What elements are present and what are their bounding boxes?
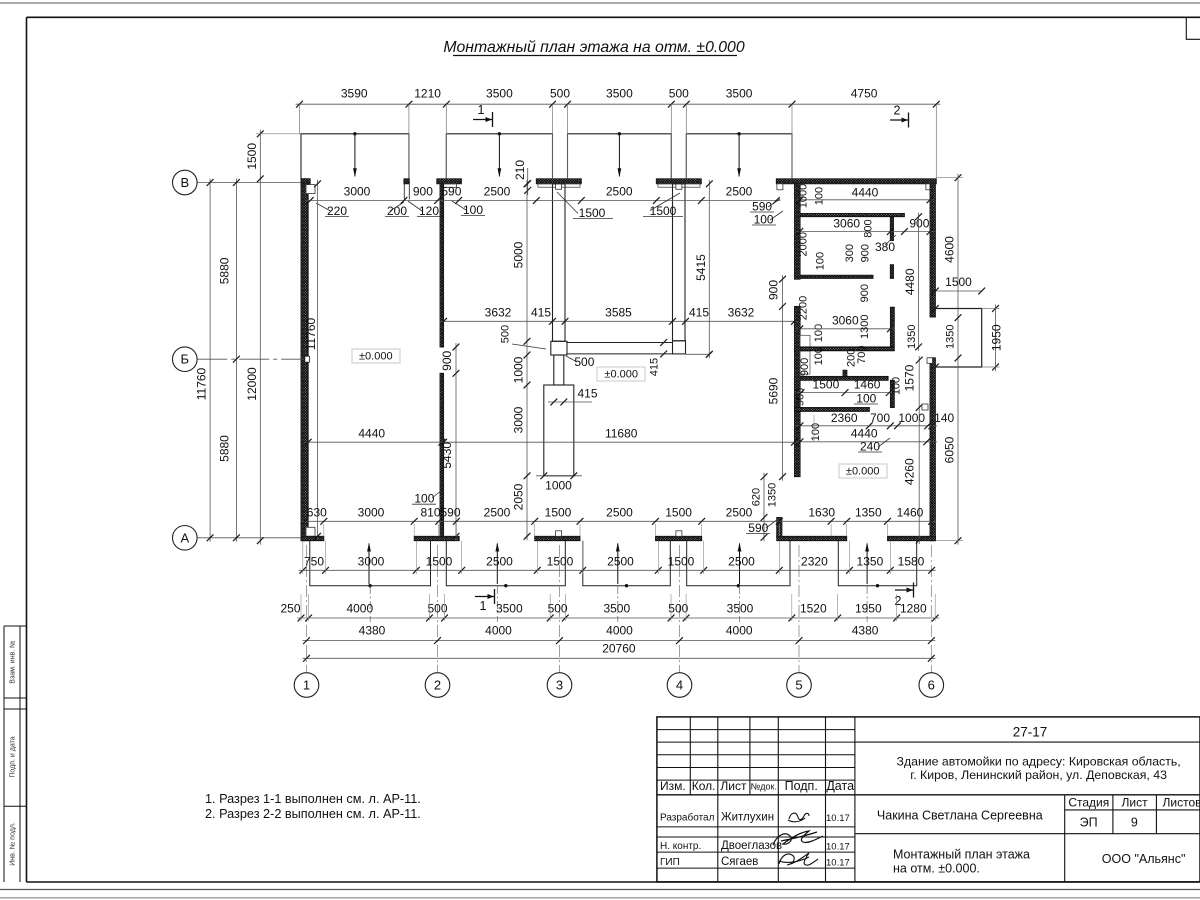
svg-text:100: 100: [813, 324, 825, 342]
svg-text:12000: 12000: [245, 367, 259, 401]
svg-text:3000: 3000: [512, 406, 526, 433]
svg-text:6: 6: [928, 678, 935, 693]
svg-text:140: 140: [934, 411, 954, 425]
svg-text:1500: 1500: [426, 554, 453, 568]
svg-text:1: 1: [478, 103, 485, 117]
svg-text:1950: 1950: [990, 324, 1004, 351]
svg-text:4380: 4380: [359, 624, 386, 638]
svg-text:1000: 1000: [545, 479, 572, 493]
svg-text:3060: 3060: [832, 314, 859, 328]
svg-text:590: 590: [748, 521, 768, 535]
svg-text:1500: 1500: [579, 206, 606, 220]
svg-text:5000: 5000: [512, 241, 526, 268]
svg-text:В: В: [180, 175, 189, 190]
svg-text:700: 700: [856, 346, 868, 364]
svg-text:210: 210: [513, 160, 527, 180]
svg-text:2500: 2500: [486, 554, 513, 568]
svg-text:3632: 3632: [728, 306, 755, 320]
svg-text:100: 100: [810, 423, 822, 441]
svg-text:5880: 5880: [218, 435, 232, 462]
svg-text:1350: 1350: [857, 554, 884, 568]
svg-text:2. Разрез 2-2 выполнен см. л.: 2. Разрез 2-2 выполнен см. л. АР-11.: [205, 807, 421, 821]
svg-text:1: 1: [480, 599, 487, 613]
svg-text:3500: 3500: [727, 602, 754, 616]
svg-text:1000: 1000: [512, 356, 526, 383]
svg-text:3060: 3060: [833, 217, 860, 231]
svg-text:1520: 1520: [800, 602, 827, 616]
svg-text:4: 4: [676, 678, 683, 693]
svg-text:3000: 3000: [358, 505, 385, 519]
svg-text:5430: 5430: [440, 442, 454, 469]
svg-text:Подп.: Подп.: [785, 779, 818, 793]
svg-text:100: 100: [814, 187, 826, 205]
svg-text:810: 810: [420, 505, 440, 519]
svg-text:1500: 1500: [547, 554, 574, 568]
svg-text:1500: 1500: [813, 378, 840, 392]
svg-text:№док.: №док.: [751, 781, 777, 791]
svg-text:1300: 1300: [859, 314, 871, 338]
svg-text:1500: 1500: [668, 554, 695, 568]
svg-text:3000: 3000: [358, 554, 385, 568]
svg-text:100: 100: [813, 347, 825, 365]
svg-text:Листов: Листов: [1163, 795, 1200, 809]
svg-text:415: 415: [689, 306, 709, 320]
svg-text:3500: 3500: [606, 87, 633, 101]
svg-text:4380: 4380: [852, 624, 879, 638]
svg-text:900: 900: [767, 280, 781, 300]
svg-text:5880: 5880: [218, 257, 232, 284]
svg-text:3500: 3500: [486, 87, 513, 101]
svg-text:4000: 4000: [606, 624, 633, 638]
svg-text:Чакина Светлана Сергеевна: Чакина Светлана Сергеевна: [877, 808, 1043, 822]
svg-text:3632: 3632: [485, 306, 512, 320]
svg-text:2500: 2500: [726, 505, 753, 519]
svg-text:700: 700: [870, 411, 890, 425]
svg-text:1000: 1000: [898, 411, 925, 425]
svg-text:1. Разрез 1-1 выполнен см. л.: 1. Разрез 1-1 выполнен см. л. АР-11.: [205, 792, 421, 806]
svg-text:Здание автомойки по адресу: Ки: Здание автомойки по адресу: Кировская об…: [897, 754, 1181, 768]
svg-text:11680: 11680: [605, 426, 638, 440]
svg-text:500: 500: [668, 602, 688, 616]
svg-text:1350: 1350: [945, 324, 957, 348]
svg-text:Подп. и дата: Подп. и дата: [10, 736, 17, 777]
svg-text:500: 500: [548, 602, 568, 616]
svg-text:3500: 3500: [496, 602, 523, 616]
svg-text:3585: 3585: [605, 306, 632, 320]
svg-text:3590: 3590: [341, 87, 368, 101]
svg-text:300: 300: [844, 244, 856, 262]
svg-text:415: 415: [531, 306, 551, 320]
svg-text:1570: 1570: [903, 364, 917, 391]
svg-text:500: 500: [669, 87, 689, 101]
svg-text:1350: 1350: [906, 324, 918, 348]
svg-text:1500: 1500: [650, 204, 677, 218]
svg-text:9: 9: [1131, 815, 1138, 829]
svg-text:1630: 1630: [808, 505, 835, 519]
svg-text:1000: 1000: [798, 184, 810, 208]
svg-text:900: 900: [909, 217, 929, 231]
svg-text:5: 5: [795, 678, 802, 693]
svg-text:±0.000: ±0.000: [846, 466, 880, 478]
svg-text:1350: 1350: [855, 505, 882, 519]
svg-text:Н. контр.: Н. контр.: [660, 841, 701, 852]
svg-text:4000: 4000: [726, 624, 753, 638]
svg-text:500: 500: [550, 87, 570, 101]
svg-text:800: 800: [863, 219, 875, 237]
svg-text:3: 3: [556, 678, 563, 693]
svg-text:2050: 2050: [512, 483, 526, 510]
svg-text:120: 120: [419, 204, 439, 218]
svg-text:4440: 4440: [851, 426, 878, 440]
svg-text:250: 250: [280, 602, 300, 616]
svg-text:±0.000: ±0.000: [604, 369, 638, 381]
svg-text:Б: Б: [181, 352, 190, 367]
svg-text:11760: 11760: [304, 317, 318, 350]
svg-text:2200: 2200: [797, 296, 809, 320]
svg-text:900: 900: [860, 244, 872, 262]
svg-text:2500: 2500: [606, 185, 633, 199]
svg-text:5690: 5690: [767, 377, 781, 404]
svg-text:Дата: Дата: [826, 779, 854, 793]
svg-text:Лист: Лист: [1122, 795, 1149, 809]
svg-text:11760: 11760: [195, 367, 209, 400]
svg-text:1350: 1350: [767, 483, 779, 507]
svg-text:2500: 2500: [606, 505, 633, 519]
svg-text:4750: 4750: [851, 87, 878, 101]
svg-text:900: 900: [440, 350, 454, 370]
svg-text:на отм. ±0.000.: на отм. ±0.000.: [893, 861, 980, 875]
svg-text:20760: 20760: [602, 642, 636, 656]
svg-text:1580: 1580: [898, 554, 925, 568]
svg-text:2000: 2000: [797, 232, 809, 256]
svg-text:3500: 3500: [726, 87, 753, 101]
svg-text:г. Киров, Ленинский район, ул.: г. Киров, Ленинский район, ул. Деповская…: [910, 768, 1167, 782]
svg-text:100: 100: [414, 492, 434, 506]
svg-text:1210: 1210: [414, 87, 441, 101]
svg-text:900: 900: [413, 185, 433, 199]
svg-text:590: 590: [441, 185, 461, 199]
svg-text:1460: 1460: [897, 505, 924, 519]
svg-text:100: 100: [891, 377, 903, 395]
svg-text:4440: 4440: [358, 426, 385, 440]
svg-text:3000: 3000: [344, 185, 371, 199]
svg-text:5415: 5415: [694, 254, 708, 281]
svg-text:Кол.: Кол.: [692, 779, 716, 793]
svg-text:1460: 1460: [854, 378, 881, 392]
svg-text:630: 630: [307, 505, 327, 519]
svg-text:Стадия: Стадия: [1068, 795, 1109, 809]
svg-text:2: 2: [434, 678, 441, 693]
svg-text:100: 100: [463, 203, 483, 217]
svg-text:27-17: 27-17: [1013, 725, 1048, 740]
svg-text:900: 900: [794, 388, 806, 406]
svg-text:Монтажный план этажа: Монтажный план этажа: [893, 847, 1030, 861]
svg-text:6050: 6050: [943, 436, 957, 463]
svg-text:А: А: [180, 530, 189, 545]
svg-text:590: 590: [440, 505, 460, 519]
svg-text:ЭП: ЭП: [1080, 815, 1098, 829]
svg-text:Лист: Лист: [720, 779, 747, 793]
svg-text:2500: 2500: [726, 185, 753, 199]
svg-text:4440: 4440: [852, 186, 879, 200]
svg-text:Двоеглазов: Двоеглазов: [721, 840, 782, 852]
svg-text:1500: 1500: [245, 143, 259, 170]
svg-text:1500: 1500: [945, 275, 972, 289]
svg-text:240: 240: [860, 439, 880, 453]
svg-text:500: 500: [574, 355, 594, 369]
svg-text:750: 750: [304, 554, 324, 568]
svg-text:415: 415: [577, 387, 597, 401]
svg-text:4600: 4600: [943, 236, 957, 263]
svg-text:Монтажный план этажа на отм. ±: Монтажный план этажа на отм. ±0.000: [443, 39, 744, 56]
svg-text:1500: 1500: [545, 505, 572, 519]
svg-text:ООО "Альянс": ООО "Альянс": [1102, 852, 1186, 866]
svg-text:1: 1: [303, 678, 310, 693]
svg-text:2500: 2500: [728, 554, 755, 568]
svg-text:900: 900: [799, 358, 811, 376]
svg-text:415: 415: [649, 358, 661, 376]
svg-text:1950: 1950: [855, 602, 882, 616]
svg-text:Житлухин: Житлухин: [721, 812, 774, 824]
svg-text:2: 2: [894, 104, 901, 118]
svg-text:1500: 1500: [665, 505, 692, 519]
svg-text:2500: 2500: [484, 505, 511, 519]
svg-text:2500: 2500: [607, 554, 634, 568]
svg-text:380: 380: [875, 240, 895, 254]
svg-text:620: 620: [751, 488, 763, 506]
svg-text:10.17: 10.17: [826, 858, 850, 869]
svg-text:10.17: 10.17: [826, 813, 850, 824]
svg-text:1280: 1280: [900, 602, 927, 616]
svg-text:10.17: 10.17: [826, 841, 850, 852]
svg-text:Инв. № подл.: Инв. № подл.: [10, 822, 17, 866]
svg-text:100: 100: [815, 252, 827, 270]
svg-text:100: 100: [856, 392, 876, 406]
svg-text:Разработал: Разработал: [660, 812, 715, 824]
svg-text:ГИП: ГИП: [660, 857, 680, 868]
svg-text:2320: 2320: [801, 554, 828, 568]
svg-text:4000: 4000: [346, 602, 373, 616]
svg-text:Взам. инв. №: Взам. инв. №: [10, 640, 17, 683]
svg-text:Изм.: Изм.: [660, 779, 686, 793]
svg-text:2500: 2500: [484, 185, 511, 199]
svg-text:2360: 2360: [831, 411, 858, 425]
svg-text:4260: 4260: [903, 458, 917, 485]
svg-text:Сягаев: Сягаев: [721, 856, 758, 868]
svg-text:4480: 4480: [903, 268, 917, 295]
svg-text:900: 900: [859, 284, 871, 302]
svg-text:±0.000: ±0.000: [359, 351, 393, 363]
svg-text:500: 500: [500, 325, 512, 343]
svg-text:3500: 3500: [603, 602, 630, 616]
svg-text:4000: 4000: [485, 624, 512, 638]
